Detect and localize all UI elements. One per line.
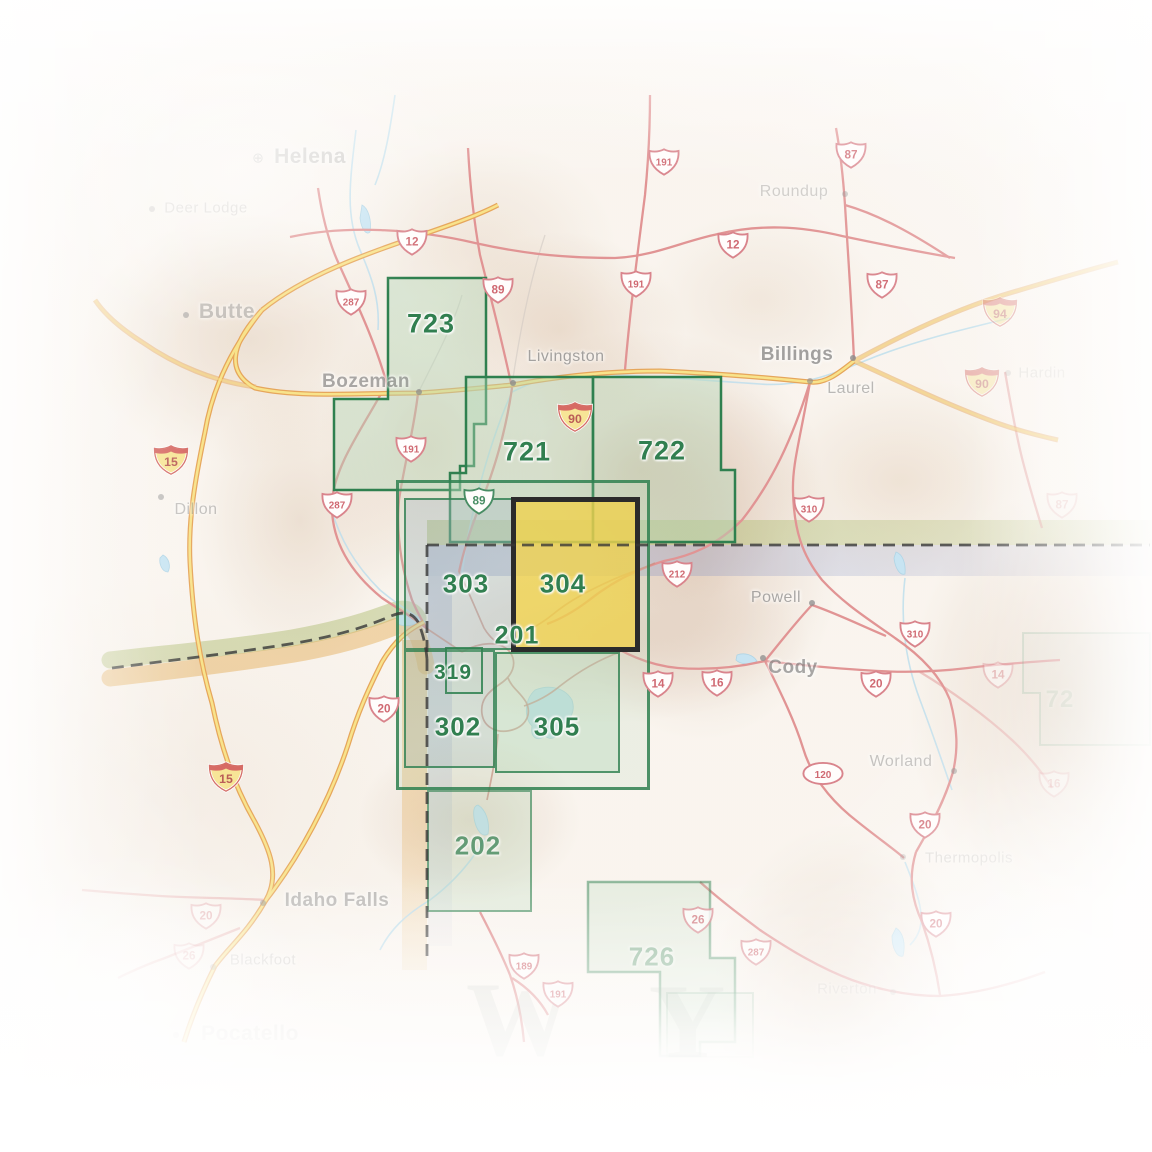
city-label-laurel: Laurel <box>827 380 874 398</box>
city-label-billings: Billings <box>761 344 834 366</box>
city-dot <box>149 206 155 212</box>
city-label-dillon: Dillon <box>174 501 217 519</box>
city-label-powell: Powell <box>751 589 801 607</box>
city-dot <box>210 964 216 970</box>
city-label-roundup: Roundup <box>760 183 828 201</box>
city-label-riverton: Riverton <box>817 981 877 998</box>
city-dot <box>951 768 957 774</box>
city-label-butte: Butte <box>199 300 255 324</box>
city-label-helena: Helena <box>274 145 346 169</box>
city-label-idaho-falls: Idaho Falls <box>285 890 390 912</box>
city-dot <box>842 191 848 197</box>
city-dot <box>807 378 813 384</box>
city-dot <box>890 989 896 995</box>
city-dot <box>260 900 266 906</box>
city-label-thermopolis: Thermopolis <box>925 850 1013 867</box>
city-label-livingston: Livingston <box>527 348 604 366</box>
city-label-deer-lodge: Deer Lodge <box>164 200 247 217</box>
map-canvas: W Y 72372172230330420131930230520272672 … <box>0 0 1152 1152</box>
city-dot <box>416 389 422 395</box>
city-label-bozeman: Bozeman <box>322 371 410 393</box>
city-label-worland: Worland <box>870 753 933 771</box>
city-label-blackfoot: Blackfoot <box>230 952 296 969</box>
city-dot <box>510 380 516 386</box>
city-label-hardin: Hardin <box>1018 365 1065 382</box>
city-dot <box>900 854 906 860</box>
city-dot <box>1005 370 1011 376</box>
city-dot <box>158 494 164 500</box>
city-labels-layer: Helena⊕Deer LodgeButteBozemanLivingstonB… <box>0 0 1152 1152</box>
city-dot <box>809 600 815 606</box>
city-dot <box>173 1032 179 1038</box>
city-label-cody: Cody <box>768 657 818 679</box>
city-dot <box>850 355 856 361</box>
city-dot <box>760 655 766 661</box>
city-label-pocatello: Pocatello <box>201 1022 299 1046</box>
state-capital-icon: ⊕ <box>252 150 264 167</box>
city-dot <box>183 312 189 318</box>
